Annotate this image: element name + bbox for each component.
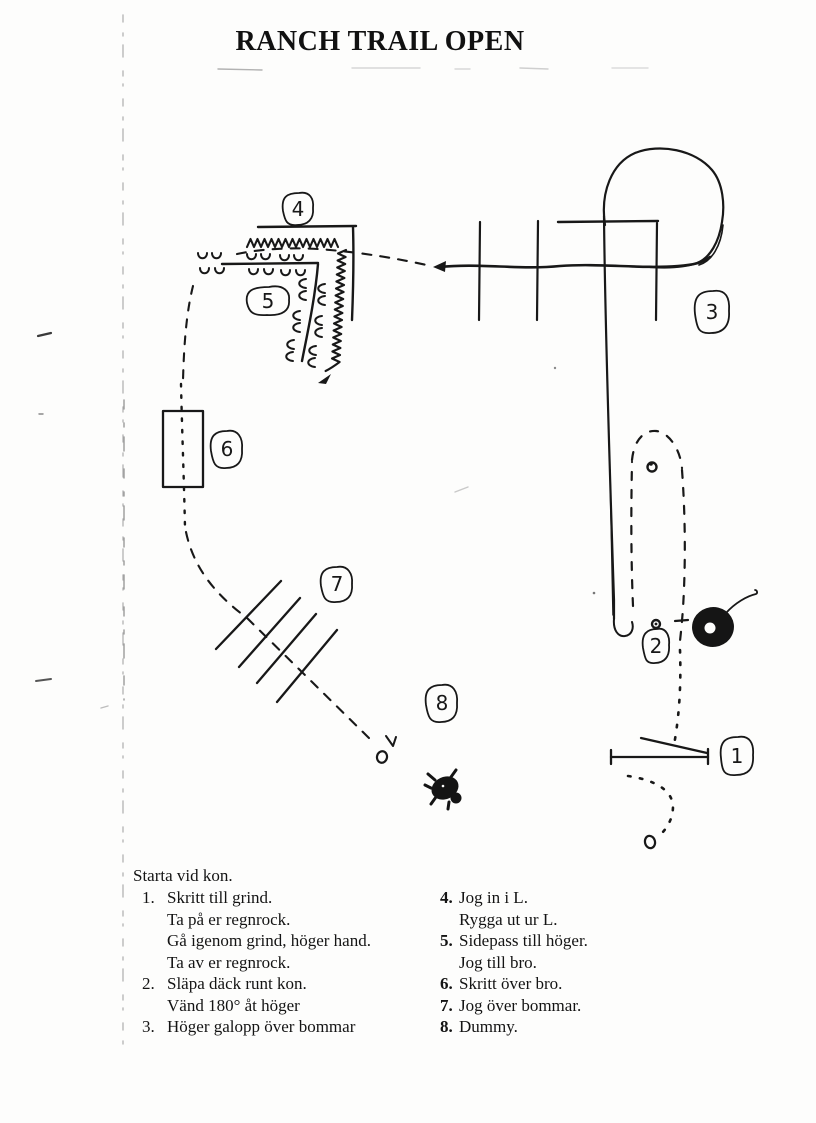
instruction-number: 5. <box>440 930 453 952</box>
instruction-number: 6. <box>440 973 453 995</box>
instruction-item-4: 4. Jog in i L. Rygga ut ur L. <box>440 887 720 930</box>
instruction-number: 3. <box>142 1016 155 1038</box>
instruction-line: Jog till bro. <box>459 952 720 974</box>
instruction-line: Ta av er regnrock. <box>167 952 442 974</box>
instruction-item-7: 7. Jog över bommar. <box>440 995 720 1017</box>
start-note: Starta vid kon. <box>133 865 233 887</box>
instruction-number: 7. <box>440 995 453 1017</box>
instruction-line: Ta på er regnrock. <box>167 909 442 931</box>
instruction-line: Gå igenom grind, höger hand. <box>167 930 442 952</box>
instruction-line: Sidepass till höger. <box>459 930 720 952</box>
instruction-line: Jog över bommar. <box>459 995 720 1017</box>
instructions-left-column: 1. Skritt till grind. Ta på er regnrock.… <box>142 887 442 1038</box>
instructions-right-column: 4. Jog in i L. Rygga ut ur L. 5. Sidepas… <box>440 887 720 1038</box>
instruction-line: Vänd 180° åt höger <box>167 995 442 1017</box>
instruction-item-2: 2. Släpa däck runt kon. Vänd 180° åt hög… <box>142 973 442 1016</box>
instruction-line: Jog in i L. <box>459 887 720 909</box>
instruction-number: 1. <box>142 887 155 909</box>
instruction-line: Höger galopp över bommar <box>167 1016 442 1038</box>
instruction-line: Skritt över bro. <box>459 973 720 995</box>
instruction-item-1: 1. Skritt till grind. Ta på er regnrock.… <box>142 887 442 973</box>
instruction-item-8: 8. Dummy. <box>440 1016 720 1038</box>
instruction-item-3: 3. Höger galopp över bommar <box>142 1016 442 1038</box>
instruction-line: Dummy. <box>459 1016 720 1038</box>
instruction-number: 2. <box>142 973 155 995</box>
scanned-course-sheet: RANCH TRAIL OPEN <box>0 0 816 1123</box>
instruction-number: 8. <box>440 1016 453 1038</box>
instruction-line: Släpa däck runt kon. <box>167 973 442 995</box>
instruction-line: Rygga ut ur L. <box>459 909 720 931</box>
instruction-item-5: 5. Sidepass till höger. Jog till bro. <box>440 930 720 973</box>
instruction-line: Skritt till grind. <box>167 887 442 909</box>
instruction-item-6: 6. Skritt över bro. <box>440 973 720 995</box>
instruction-number: 4. <box>440 887 453 909</box>
instructions: Starta vid kon. 1. Skritt till grind. Ta… <box>0 0 816 1123</box>
